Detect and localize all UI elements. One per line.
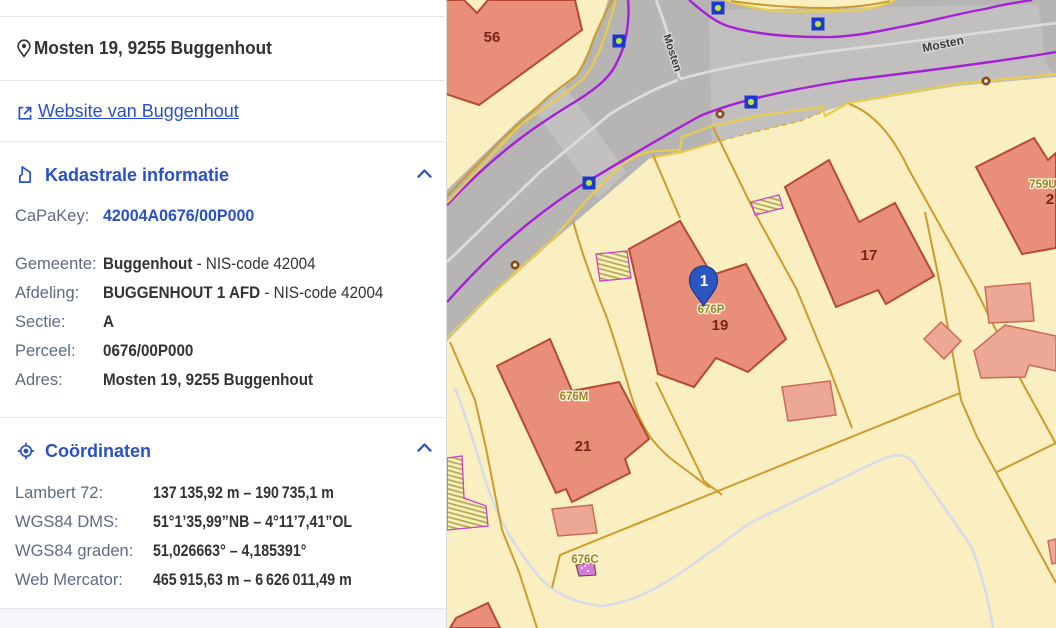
svg-text:1: 1 <box>700 273 709 290</box>
svg-text:17: 17 <box>861 247 878 264</box>
svg-text:19: 19 <box>712 317 729 334</box>
svg-text:2: 2 <box>1046 191 1054 208</box>
svg-text:676P: 676P <box>698 304 725 316</box>
svg-text:56: 56 <box>484 29 501 46</box>
svg-text:676M: 676M <box>560 391 589 403</box>
svg-text:676C: 676C <box>571 554 599 566</box>
svg-text:21: 21 <box>575 438 592 455</box>
svg-text:759U: 759U <box>1029 179 1056 191</box>
